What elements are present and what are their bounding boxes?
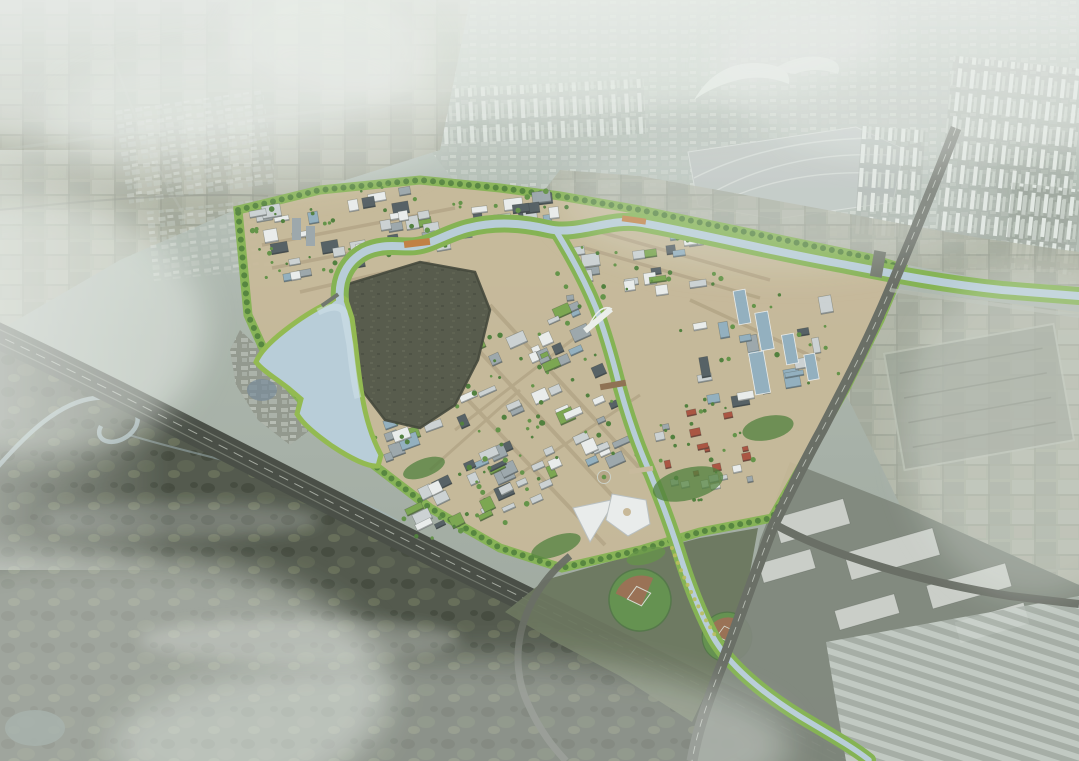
aerial-render — [0, 0, 1079, 761]
scene-canvas — [0, 0, 1079, 761]
global-tint — [0, 0, 1079, 761]
fog-layer — [0, 0, 1079, 761]
